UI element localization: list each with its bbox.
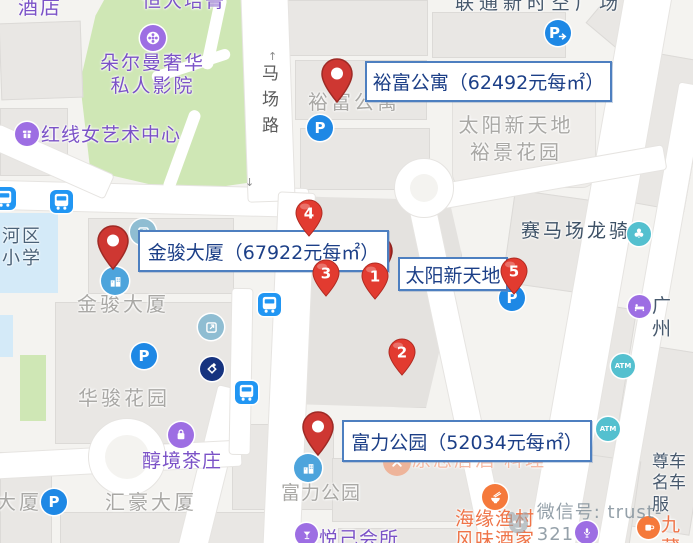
label-fuli-name: 富力公园 [281,482,361,505]
marker-5[interactable]: 5 [500,257,528,295]
bus-stop-icon[interactable] [235,381,258,404]
map-canvas[interactable]: 酒店 恒大培菁 朵尔曼奢华 私人影院 红线女艺术中心 联通新时空广场 裕富公寓 … [0,0,693,543]
callout-fuli-park[interactable]: 富力公园（52034元每㎡） [342,420,592,462]
label-hengda: 恒大培菁 [142,0,226,13]
pin-jinjun-tower[interactable] [95,224,131,272]
pin-yufu-apartment[interactable] [319,57,355,105]
label-yueji-club: 悦己会所 [319,528,399,543]
bank-icon[interactable] [200,357,224,381]
park-area [80,0,252,196]
water-strip [0,315,13,357]
arrow-glyph [558,32,567,41]
marker-number: 3 [321,265,331,283]
label-huajun: 华骏花园 [78,386,170,410]
building-icon-fuli[interactable] [294,454,322,482]
marker-2[interactable]: 2 [388,338,416,376]
road [229,288,254,455]
parking-letter: P [139,347,150,365]
label-racecourse: 赛马场龙骑 [521,220,631,243]
label-sun-garden: 太阳新天地 裕景花园 [450,112,582,166]
label-school: 河区 小学 [2,226,42,269]
art-center-icon[interactable] [15,122,39,146]
watermark: 微信号: trust-321 [504,498,693,543]
label-unicom-plaza: 联通新时空广场 [455,0,623,15]
label-jinjun-name: 金骏大厦 [77,292,169,316]
building-block [60,512,294,543]
label-huihao: 汇豪大厦 [105,490,197,514]
label-tea-house: 醇境茶庄 [142,450,222,473]
metro-exit-icon[interactable] [198,314,224,340]
marker-number: 5 [509,263,519,281]
label-guangzhou: 广州 [652,295,693,341]
marker-1[interactable]: 1 [361,262,389,300]
hotel-bed-icon[interactable] [628,295,651,318]
marker-number: 1 [370,268,380,286]
marker-3[interactable]: 3 [312,259,340,297]
parking-entrance-icon-unicom[interactable]: P [545,20,571,46]
entertainment-club-icon[interactable]: ♣ [627,222,651,246]
label-building-bl: 大厦 [0,490,42,514]
marker-number: 4 [304,205,314,223]
label-art-center: 红线女艺术中心 [41,124,181,147]
label-cinema: 朵尔曼奢华 私人影院 [95,52,210,98]
club-martini-icon[interactable] [295,523,318,543]
roundabout [394,158,454,218]
atm-letters: ATM [600,425,617,433]
building-block [0,21,83,101]
building-block [278,0,428,56]
bus-stop-icon[interactable] [258,293,281,316]
label-machang-road: 马场路 [256,64,281,142]
road-arrow-down: ↓ [245,176,254,189]
parking-icon-yufu[interactable]: P [307,115,333,141]
marker-number: 2 [397,344,407,362]
parking-icon-southwest[interactable]: P [41,489,67,515]
marker-4[interactable]: 4 [295,199,323,237]
shopping-bag-icon[interactable] [168,422,194,448]
road-arrow-up: ↑ [268,50,277,63]
atm-icon[interactable]: ATM [611,354,635,378]
bus-stop-icon[interactable] [0,187,16,210]
watermark-text: 微信号: trust-321 [537,498,693,543]
parking-letter: P [49,493,60,511]
garden-green-patch [20,355,46,421]
atm-icon[interactable]: ATM [596,417,620,441]
cinema-icon[interactable] [140,25,166,51]
bus-stop-icon[interactable] [50,190,73,213]
callout-yufu-apartment[interactable]: 裕富公寓（62492元每㎡） [365,61,612,102]
callout-sun-plaza[interactable]: 太阳新天地 [398,257,508,291]
atm-letters: ATM [615,362,632,370]
watermark-logo-icon [504,508,533,536]
parking-letter: P [315,119,326,137]
parking-icon-huajun[interactable]: P [131,343,157,369]
label-hotel-topleft: 酒店 [18,0,62,19]
pin-fuli-park[interactable] [300,410,336,458]
callout-jinjun-tower[interactable]: 金骏大厦（67922元每㎡） [138,230,389,272]
